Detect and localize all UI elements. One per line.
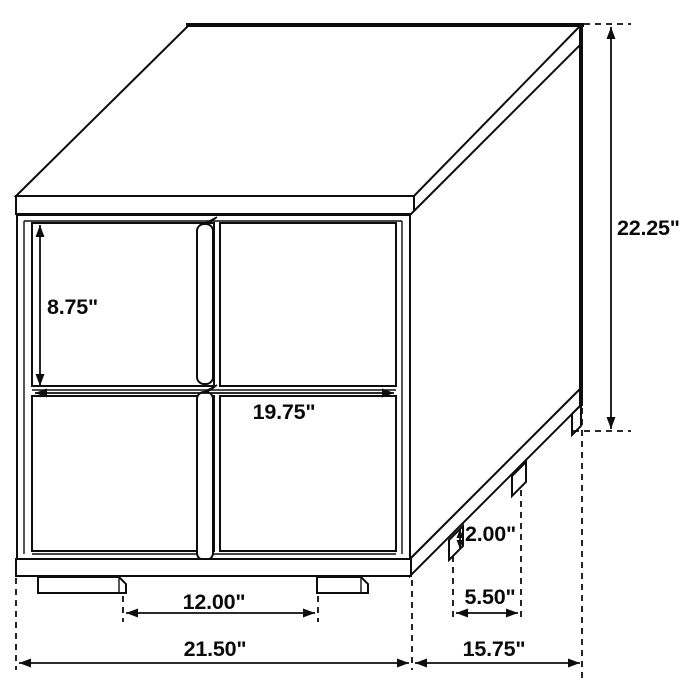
dimension-diagram-canvas: 8.75" 19.75" 22.25" 2.00" — [0, 0, 700, 700]
dimension-label-drawer-height: 8.75" — [47, 295, 98, 319]
dimension-overall-height: 22.25" — [573, 24, 680, 431]
handle-top-bar — [197, 224, 213, 384]
dimension-label-side-leg-spacing: 5.50" — [464, 585, 515, 609]
dimension-label-overall-depth: 15.75" — [463, 637, 526, 661]
dimension-label-overall-height: 22.25" — [617, 216, 680, 240]
top-slab-front-edge — [16, 196, 414, 214]
dimension-label-overall-width: 21.50" — [184, 637, 247, 661]
drawer-top-right — [220, 223, 396, 386]
front-leg-left — [38, 577, 126, 593]
dimension-label-drawer-width: 19.75" — [253, 400, 316, 424]
nightstand-drawing — [16, 25, 582, 593]
dimension-label-front-leg-spacing: 12.00" — [183, 590, 246, 614]
dimension-leg-height: 2.00" — [460, 522, 516, 549]
dimension-label-leg-height: 2.00" — [465, 522, 516, 546]
dimension-front-leg-spacing: 12.00" — [123, 590, 318, 622]
drawer-bottom-left — [32, 396, 214, 551]
handle-bottom-bar — [197, 392, 213, 560]
base-rail-front — [16, 559, 411, 576]
nightstand-dimension-diagram: 8.75" 19.75" 22.25" 2.00" — [0, 0, 700, 700]
